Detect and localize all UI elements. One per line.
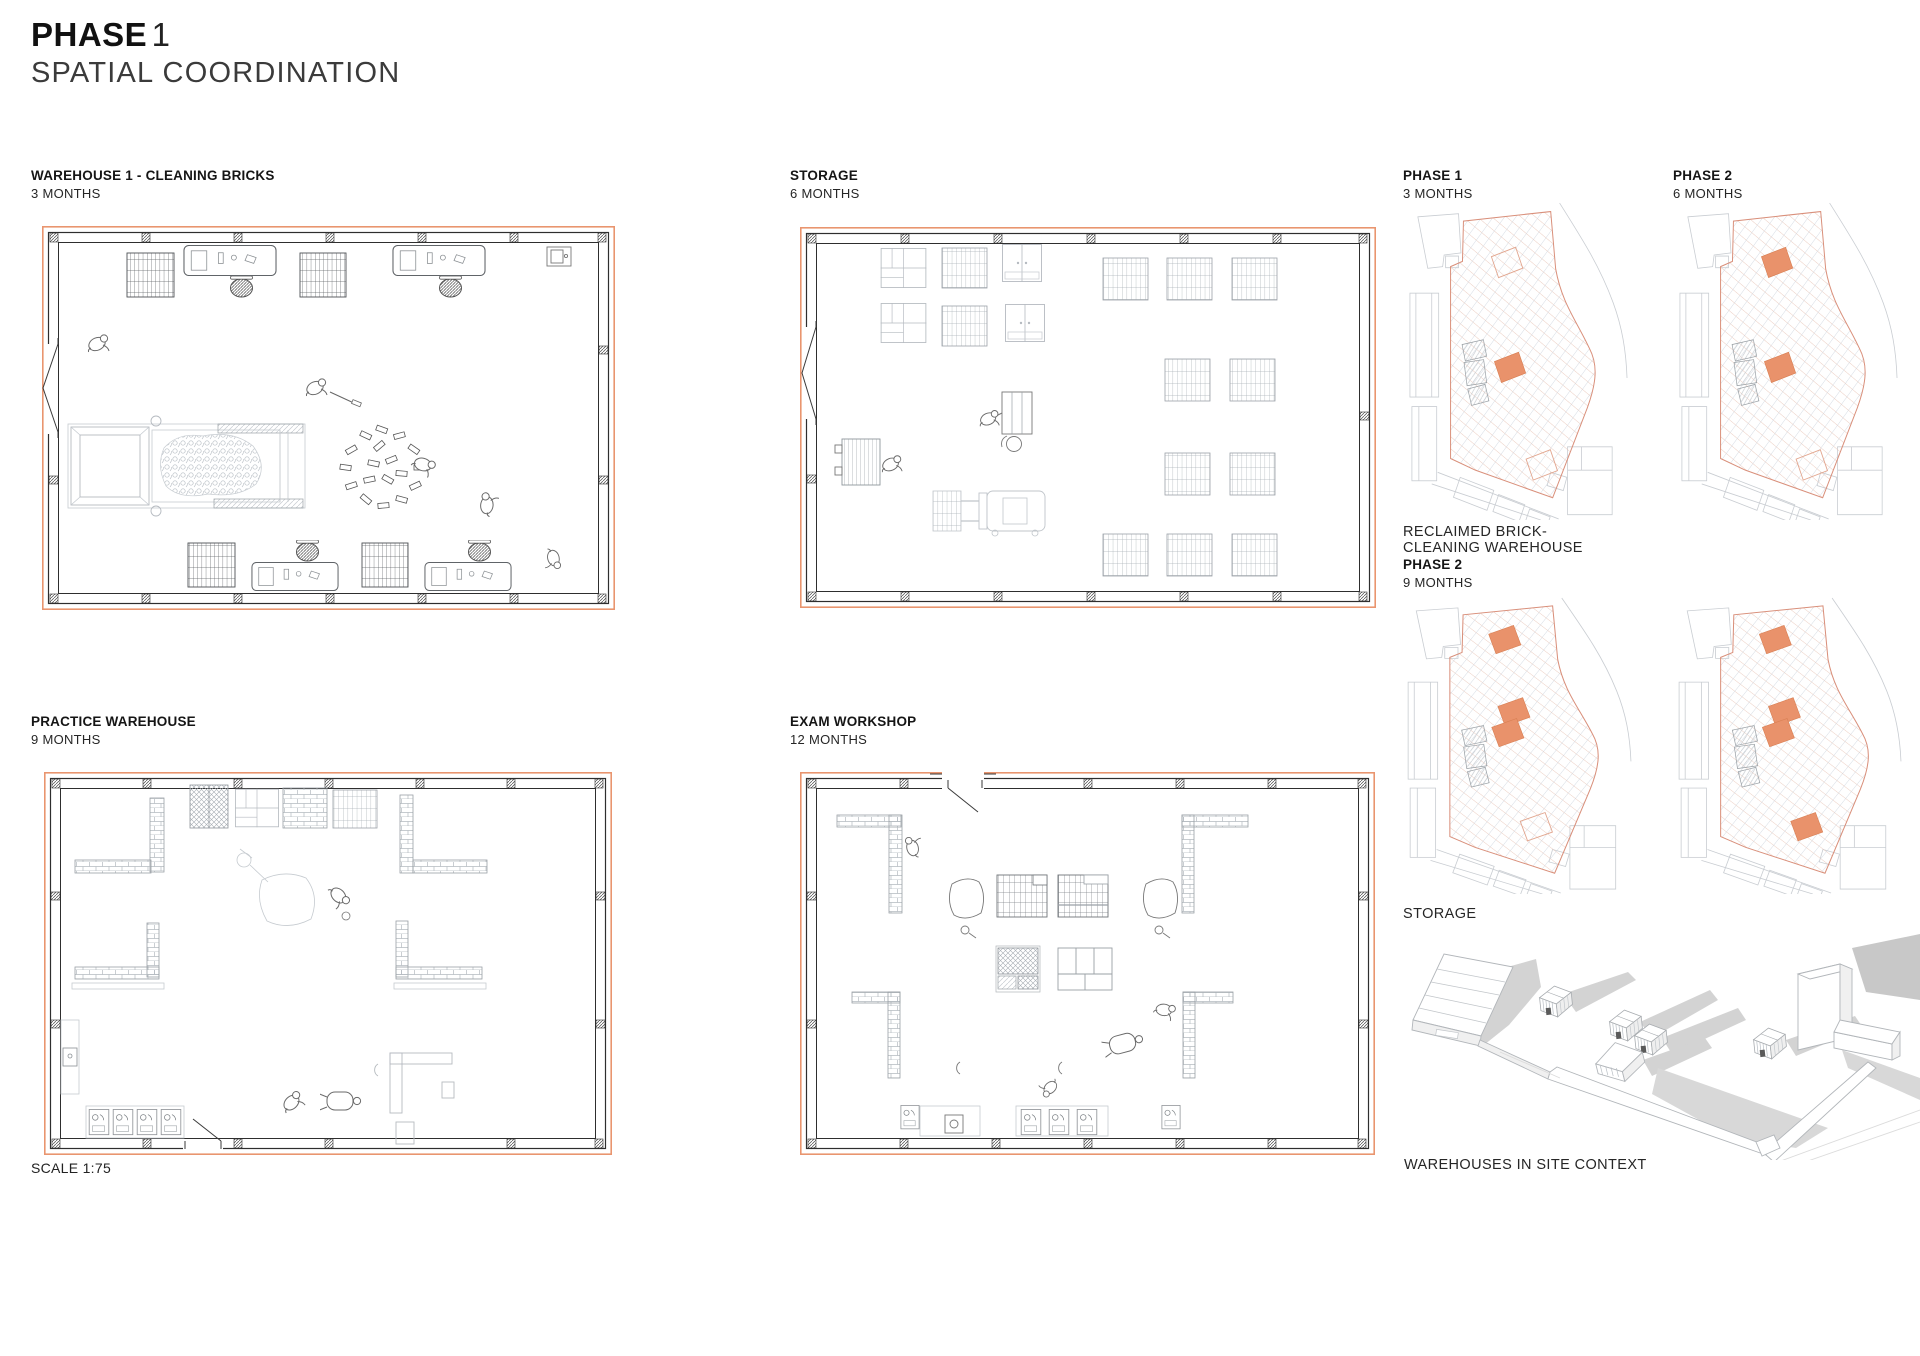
title-block: PHASE 1 SPATIAL COORDINATION bbox=[31, 16, 400, 90]
exam-brick-walls bbox=[837, 815, 1248, 1078]
caption-storage: STORAGE bbox=[1403, 906, 1476, 922]
label-storage: STORAGE 6 MONTHS bbox=[790, 168, 860, 201]
door-bottom bbox=[183, 1119, 223, 1153]
person-with-barrow bbox=[279, 1090, 361, 1115]
door-left bbox=[802, 321, 816, 425]
phase-title: PHASE 2 bbox=[1673, 168, 1743, 183]
label-warehouse1: WAREHOUSE 1 - CLEANING BRICKS 3 MONTHS bbox=[31, 168, 275, 201]
scale-note: SCALE 1:75 bbox=[31, 1160, 111, 1176]
siteplan-phase2-6months bbox=[1672, 202, 1900, 520]
left-shelving bbox=[881, 244, 1045, 346]
pallet-jack bbox=[979, 392, 1032, 452]
caption-reclaimed-brick: RECLAIMED BRICK- CLEANING WAREHOUSE bbox=[1403, 524, 1608, 556]
plan-title: STORAGE bbox=[790, 168, 860, 183]
sink bbox=[547, 247, 571, 266]
sorting-desk bbox=[835, 439, 902, 485]
axon-site-context bbox=[1400, 932, 1920, 1160]
forklift bbox=[933, 491, 1045, 536]
center-machine bbox=[237, 849, 351, 926]
page-subtitle: SPATIAL COORDINATION bbox=[31, 57, 400, 90]
floorplan-exam bbox=[800, 772, 1375, 1155]
plan-duration: 12 MONTHS bbox=[790, 732, 916, 747]
label-site-phase1: PHASE 1 3 MONTHS bbox=[1403, 168, 1473, 201]
siteplan-final bbox=[1671, 597, 1904, 894]
plan-title: EXAM WORKSHOP bbox=[790, 714, 916, 729]
material-stations bbox=[190, 785, 377, 828]
people bbox=[87, 335, 564, 571]
phase-duration: 6 MONTHS bbox=[1673, 186, 1743, 201]
door-left bbox=[43, 338, 58, 438]
label-site-phase2b: PHASE 2 9 MONTHS bbox=[1403, 557, 1473, 590]
workstation-row bbox=[86, 1106, 184, 1138]
phase-title: PHASE 1 bbox=[1403, 168, 1473, 183]
desks bbox=[184, 245, 511, 590]
presentation-board: PHASE 1 SPATIAL COORDINATION WAREHOUSE 1… bbox=[0, 0, 1920, 1356]
pallet-grids bbox=[127, 253, 408, 587]
phase-duration: 3 MONTHS bbox=[1403, 186, 1473, 201]
siteplan-phase2-9months bbox=[1400, 597, 1634, 894]
phase-title: PHASE 2 bbox=[1403, 557, 1473, 572]
siteplan-phase1-3months bbox=[1402, 202, 1630, 520]
title-number: 1 bbox=[152, 16, 170, 53]
practice-brick-walls bbox=[72, 795, 487, 989]
floorplan-storage bbox=[800, 227, 1376, 608]
sink-area bbox=[61, 1020, 79, 1094]
phase-duration: 9 MONTHS bbox=[1403, 575, 1473, 590]
workstation-row bbox=[901, 1105, 1180, 1136]
label-exam: EXAM WORKSHOP 12 MONTHS bbox=[790, 714, 916, 747]
sample-squares bbox=[996, 946, 1112, 992]
label-practice: PRACTICE WAREHOUSE 9 MONTHS bbox=[31, 714, 196, 747]
cleaning-machine bbox=[68, 416, 305, 516]
page-title: PHASE 1 bbox=[31, 16, 400, 54]
title-phase: PHASE bbox=[31, 16, 147, 53]
plan-duration: 6 MONTHS bbox=[790, 186, 860, 201]
floorplan-warehouse1 bbox=[42, 226, 615, 610]
plan-title: WAREHOUSE 1 - CLEANING BRICKS bbox=[31, 168, 275, 183]
pallet-array bbox=[1103, 258, 1277, 576]
brick-pile bbox=[340, 425, 425, 508]
brick-grids bbox=[997, 875, 1108, 917]
caption-axon: WAREHOUSES IN SITE CONTEXT bbox=[1404, 1157, 1647, 1173]
wall-columns bbox=[807, 234, 1369, 601]
label-site-phase2: PHASE 2 6 MONTHS bbox=[1673, 168, 1743, 201]
plan-duration: 3 MONTHS bbox=[31, 186, 275, 201]
wall-columns bbox=[51, 779, 605, 1148]
plan-title: PRACTICE WAREHOUSE bbox=[31, 714, 196, 729]
floorplan-practice bbox=[44, 772, 612, 1155]
corner-tables bbox=[375, 1053, 454, 1144]
plan-duration: 9 MONTHS bbox=[31, 732, 196, 747]
